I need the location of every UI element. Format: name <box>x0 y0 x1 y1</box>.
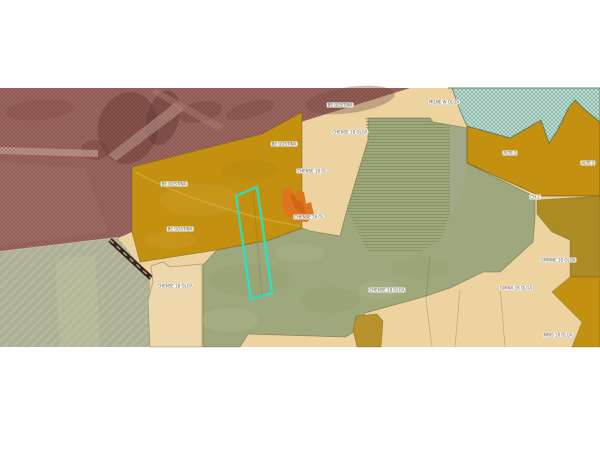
map-canvas[interactable] <box>0 0 600 450</box>
zone-tan-parcel-bottom-left[interactable] <box>148 262 202 347</box>
zone-ochre-patch-bottom[interactable] <box>353 314 383 347</box>
map-viewport[interactable]: BE GOSTINAMILNE W OLGACHENSE 18 OLGABE G… <box>0 0 600 450</box>
